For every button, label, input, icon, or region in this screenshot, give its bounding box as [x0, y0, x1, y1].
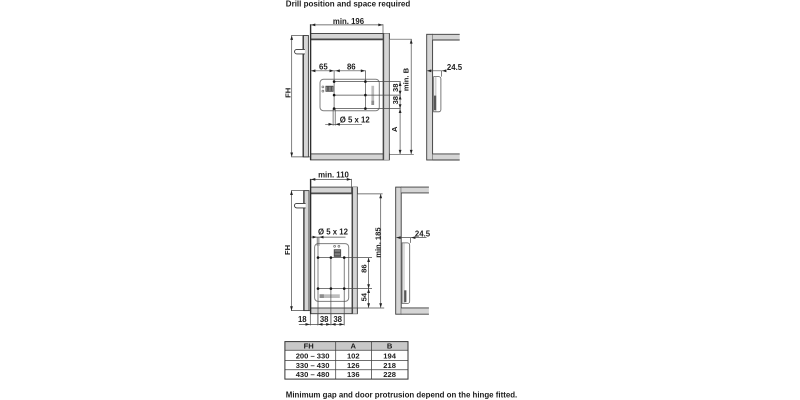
svg-text:194: 194	[383, 351, 396, 360]
svg-text:126: 126	[347, 361, 360, 370]
svg-text:136: 136	[347, 370, 360, 379]
svg-text:54: 54	[360, 292, 369, 301]
svg-text:A: A	[390, 126, 399, 132]
svg-text:330 – 430: 330 – 430	[296, 361, 330, 370]
svg-text:38: 38	[320, 315, 329, 324]
svg-text:218: 218	[383, 361, 396, 370]
svg-text:FH: FH	[283, 88, 292, 98]
svg-text:24.5: 24.5	[415, 229, 431, 238]
svg-text:228: 228	[383, 370, 396, 379]
svg-text:min. 185: min. 185	[373, 227, 382, 258]
svg-text:Ø 5 x 12: Ø 5 x 12	[318, 227, 349, 236]
svg-text:min. 196: min. 196	[333, 17, 365, 26]
svg-text:200 – 330: 200 – 330	[296, 351, 330, 360]
svg-text:min. 110: min. 110	[318, 170, 349, 179]
svg-text:86: 86	[347, 63, 356, 72]
svg-text:38: 38	[391, 84, 400, 92]
svg-text:FH: FH	[283, 245, 292, 255]
svg-text:Ø 5 x 12: Ø 5 x 12	[340, 115, 371, 124]
svg-text:102: 102	[347, 351, 360, 360]
svg-text:24.5: 24.5	[447, 63, 463, 72]
svg-text:Minimum gap and door protrusio: Minimum gap and door protrusion depend o…	[286, 390, 517, 399]
svg-text:FH: FH	[304, 341, 314, 350]
svg-text:Drill position and space requi: Drill position and space required	[286, 0, 411, 9]
svg-text:86: 86	[360, 264, 369, 272]
svg-text:65: 65	[319, 63, 328, 72]
svg-text:38: 38	[333, 315, 342, 324]
svg-text:B: B	[387, 341, 393, 350]
svg-text:430 – 480: 430 – 480	[296, 370, 330, 379]
svg-text:38: 38	[391, 96, 400, 104]
svg-text:18: 18	[298, 315, 307, 324]
svg-text:min. B: min. B	[401, 67, 410, 91]
svg-text:A: A	[351, 341, 357, 350]
